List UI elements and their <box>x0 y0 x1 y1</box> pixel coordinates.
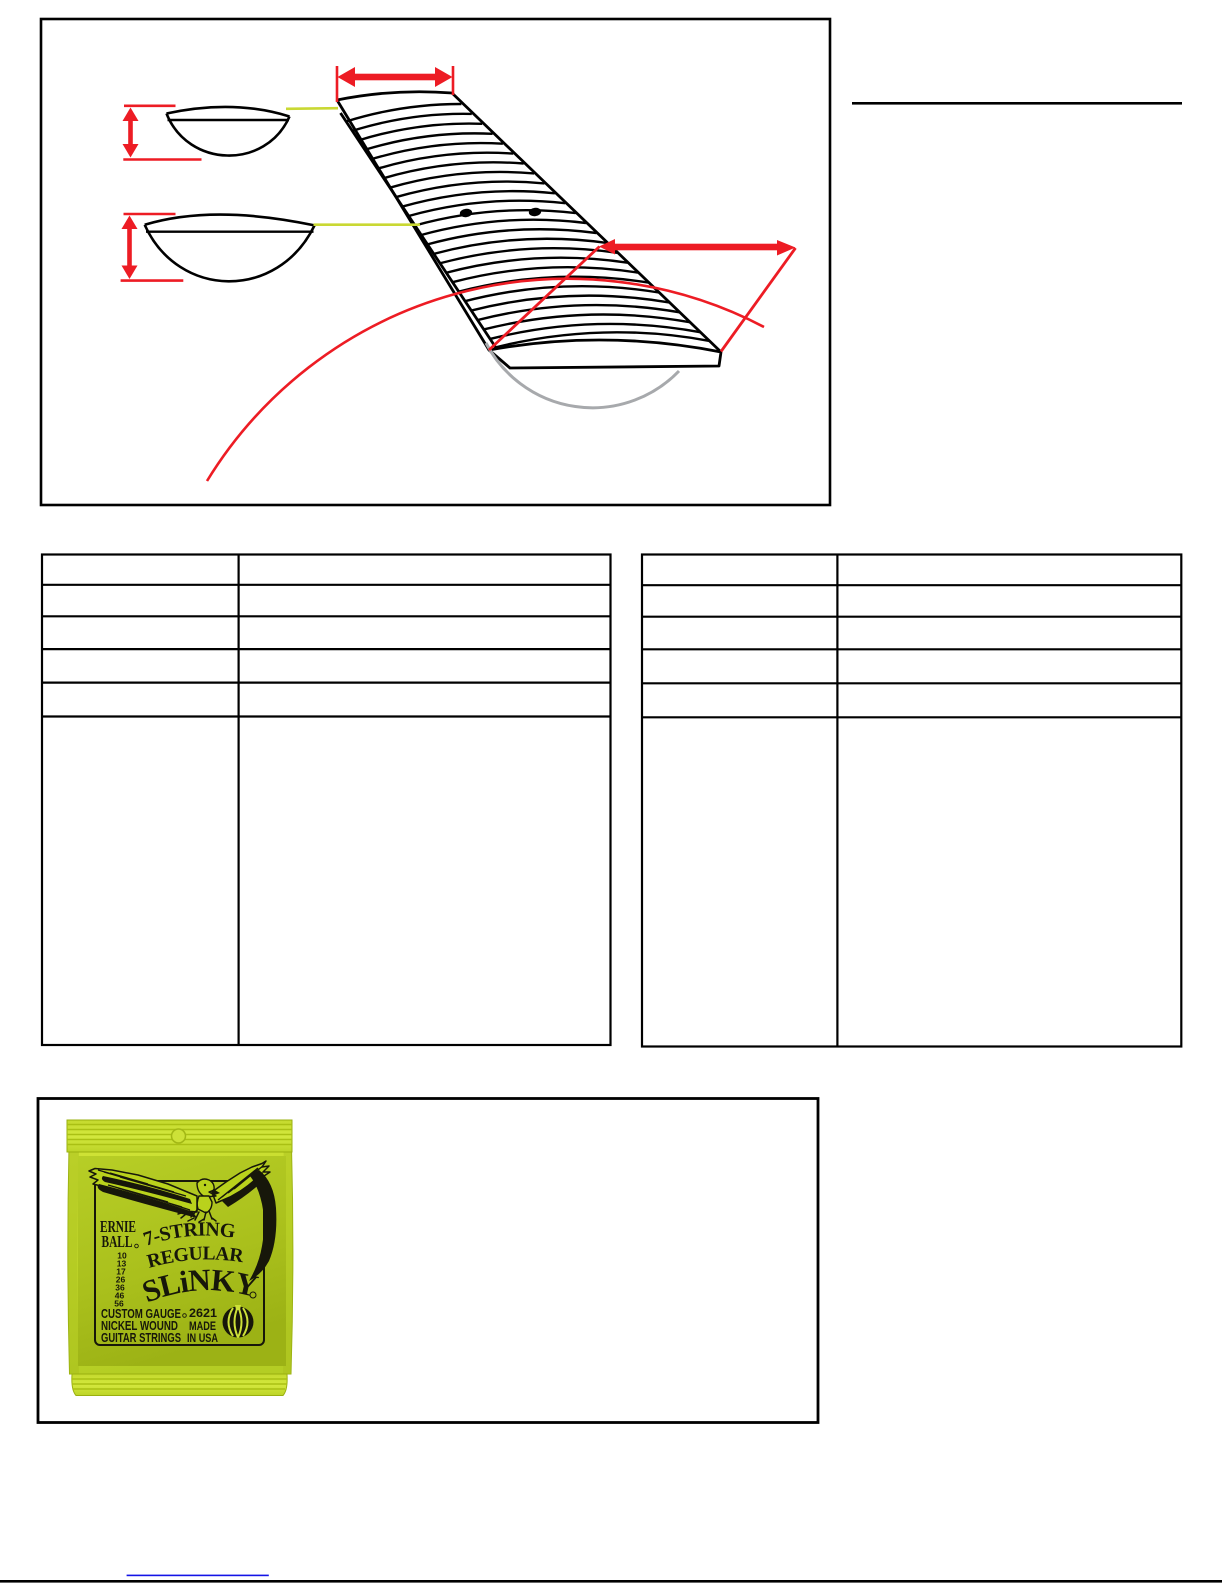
svg-text:GUITAR STRINGS: GUITAR STRINGS <box>101 1331 181 1345</box>
svg-text:IN USA: IN USA <box>187 1331 218 1345</box>
svg-text:BALL: BALL <box>102 1232 133 1251</box>
svg-text:2621: 2621 <box>189 1306 217 1320</box>
